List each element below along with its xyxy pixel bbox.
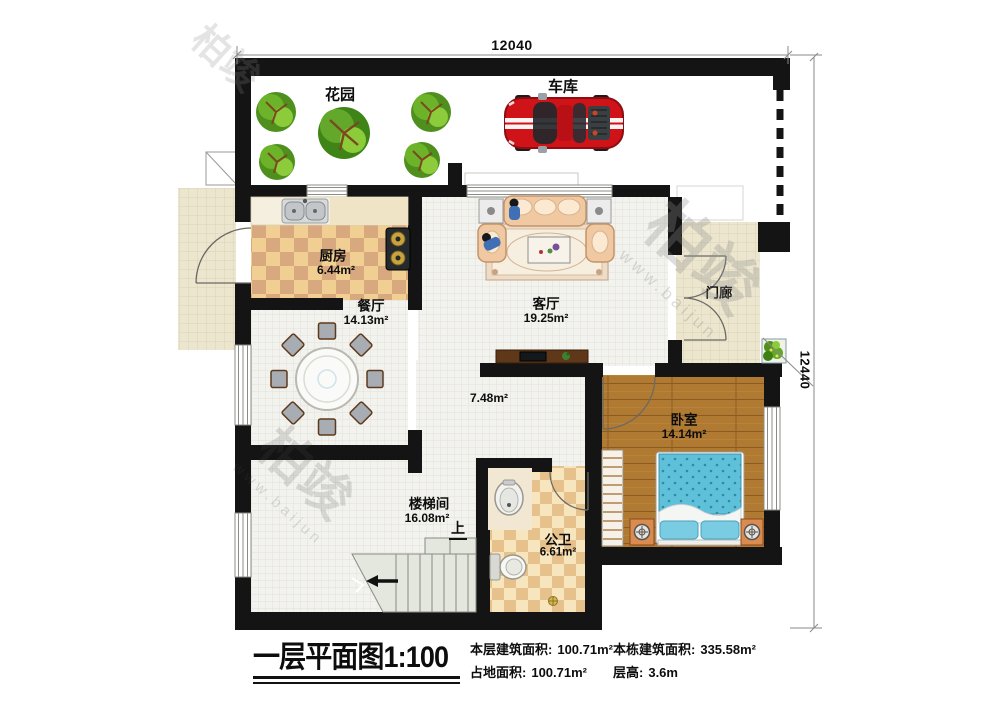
window-icon: [235, 345, 251, 425]
floor-drain-icon: [549, 597, 558, 606]
nightstand-icon: [741, 519, 763, 545]
entry-step: [206, 152, 237, 185]
toilet-icon: [490, 554, 526, 580]
dining-label: 餐厅: [358, 299, 385, 313]
bathroom-label: 公卫: [545, 533, 572, 547]
side-terrace-floor: [178, 188, 236, 350]
window-icon: [467, 185, 612, 197]
porch-label: 门廊: [706, 286, 733, 300]
building-area-line: 本栋建筑面积:335.58m²: [613, 639, 756, 658]
tree-icon: [411, 92, 451, 132]
stairwell-area: 16.08m²: [405, 512, 450, 524]
porch-apron: [677, 186, 743, 220]
window-icon: [307, 185, 347, 197]
living-label: 客厅: [533, 297, 560, 311]
bathroom-sink-icon: [495, 480, 523, 515]
title-underline: [253, 682, 460, 684]
floor-height-line: 层高:3.6m: [613, 662, 678, 681]
kitchen-label: 厨房: [320, 249, 347, 263]
garden-trees: [256, 92, 451, 180]
dining-area: 14.13m²: [344, 314, 389, 326]
bedroom-label: 卧室: [671, 413, 698, 427]
kitchen-area: 6.44m²: [317, 264, 355, 276]
tree-icon: [259, 144, 295, 180]
floor-area-line: 本层建筑面积:100.71m²: [470, 639, 613, 658]
nightstand-icon: [630, 519, 654, 545]
title-underline: [253, 676, 460, 679]
tree-icon: [404, 142, 440, 178]
floor-plan-drawing: [0, 0, 1000, 706]
kitchen-counter: [251, 197, 408, 225]
desk-icon: [496, 350, 588, 363]
tree-icon: [318, 107, 370, 159]
car-icon: [505, 93, 623, 153]
bed-icon: [656, 452, 744, 545]
plan-title: 一层平面图1:100: [253, 632, 448, 676]
floor-plan-canvas: 花园 车库 厨房 6.44m² 餐厅 14.13m² 客厅 19.25m² 门廊…: [0, 0, 1000, 706]
dimension-top: 12040: [491, 37, 532, 53]
window-icon: [764, 407, 780, 510]
garage-apron: [465, 173, 578, 186]
plant-icon: [762, 339, 786, 363]
garden-label: 花园: [325, 88, 355, 103]
living-area: 19.25m²: [524, 312, 569, 324]
bathroom-area: 6.61m²: [540, 547, 576, 559]
stairwell-label: 楼梯间: [409, 497, 450, 511]
wardrobe-icon: [602, 450, 623, 546]
dimension-right: 12440: [798, 351, 813, 390]
window-icon: [235, 513, 251, 577]
garage-label: 车库: [548, 80, 578, 95]
tree-icon: [256, 92, 296, 132]
hallway-area: 7.48m²: [470, 392, 508, 404]
stairs-up-label: 上: [449, 521, 467, 535]
sofa-set-icon: [478, 196, 614, 280]
kitchen-sink-icon: [282, 199, 328, 223]
bedroom-area: 14.14m²: [662, 428, 707, 440]
stove-icon: [386, 228, 410, 270]
land-area-line: 占地面积:100.71m²: [470, 662, 587, 681]
